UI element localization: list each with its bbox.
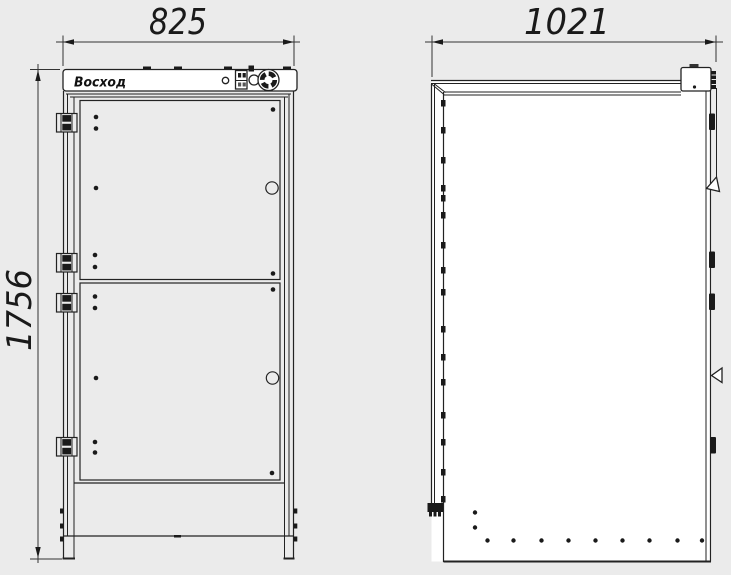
edge-clip xyxy=(441,469,446,476)
back-hinge-block xyxy=(709,252,715,269)
box-connector xyxy=(711,76,716,80)
rivet-dot xyxy=(271,271,276,276)
keyhole-lower xyxy=(266,372,278,384)
rivet-dot xyxy=(566,538,570,542)
leg-bump xyxy=(294,509,298,514)
box-connector xyxy=(711,71,716,75)
edge-clip xyxy=(441,127,446,134)
control-panel: Восход xyxy=(63,66,297,92)
front-height-dimension-label: 1756 xyxy=(0,269,40,351)
hinge-icon xyxy=(57,438,78,457)
side-depth-dimension-label: 1021 xyxy=(524,2,610,43)
rivet-dot xyxy=(94,186,99,191)
upper-door xyxy=(80,101,280,280)
cabinet-frame xyxy=(64,91,294,559)
rivet-dot xyxy=(270,471,275,476)
arrowhead-top xyxy=(35,70,40,81)
edge-clip xyxy=(441,496,446,503)
technical-drawing: 825 1756 Восход xyxy=(0,0,731,575)
arrowhead-left xyxy=(63,39,74,44)
leg-bump xyxy=(60,509,64,514)
edge-clip xyxy=(441,157,446,164)
rivet-dot xyxy=(271,107,276,112)
edge-clip xyxy=(441,439,446,446)
edge-clip xyxy=(441,354,446,361)
rivet-dot xyxy=(485,538,489,542)
back-hinge-block xyxy=(709,294,715,311)
arrowhead-bottom xyxy=(35,547,40,558)
rivet-dot xyxy=(94,126,99,131)
box-connector xyxy=(711,80,716,84)
front-width-dimension: 825 xyxy=(56,2,300,66)
edge-clip xyxy=(441,289,446,296)
thermostat-knob-icon xyxy=(258,70,279,91)
edge-clip xyxy=(441,100,446,107)
rivet-dot xyxy=(593,538,597,542)
rivet-dot xyxy=(94,376,99,381)
keyhole-upper xyxy=(266,182,278,194)
back-hinge-block xyxy=(710,437,716,454)
leg-bump xyxy=(60,524,64,529)
edge-clip xyxy=(441,195,446,202)
rivet-dot xyxy=(93,265,98,270)
edge-clip xyxy=(441,412,446,419)
rivet-dot xyxy=(675,538,679,542)
rivet-dot xyxy=(473,525,477,529)
hinge-icon xyxy=(57,254,78,273)
kick-panel xyxy=(64,483,294,538)
side-view: 1021 xyxy=(425,2,723,562)
legs xyxy=(60,509,297,559)
edge-clip xyxy=(441,212,446,219)
edge-clip xyxy=(441,185,446,192)
rivet-dot xyxy=(647,538,651,542)
arrowhead-right xyxy=(705,39,716,44)
brand-logo-text: Восход xyxy=(74,75,126,91)
box-connector xyxy=(711,85,716,89)
edge-clip xyxy=(441,267,446,274)
door-bottom-block xyxy=(428,503,444,512)
lower-door xyxy=(80,283,280,480)
front-view: 825 1756 Восход xyxy=(0,2,300,563)
drawing-canvas: 825 1756 Восход xyxy=(0,0,731,575)
rivet-dot xyxy=(271,287,276,292)
rivet-dot xyxy=(93,253,98,258)
hinge-icon xyxy=(57,294,78,313)
edge-clip xyxy=(441,326,446,333)
side-body-fill xyxy=(432,80,712,562)
rivet-dot xyxy=(94,115,99,120)
back-bracket-triangle xyxy=(712,368,723,383)
edge-clip xyxy=(441,379,446,386)
edge-clip xyxy=(441,242,446,249)
rivet-dot xyxy=(511,538,515,542)
leg-bump xyxy=(294,524,298,529)
back-hinge-block xyxy=(709,114,715,131)
power-switch-icon xyxy=(236,71,248,90)
leg-bump xyxy=(60,537,64,542)
side-depth-dimension: 1021 xyxy=(425,2,723,77)
rivet-dot xyxy=(473,510,477,514)
front-width-dimension-label: 825 xyxy=(149,2,207,43)
rivet-dot xyxy=(539,538,543,542)
rivet-dot xyxy=(93,294,98,299)
rivet-dot xyxy=(620,538,624,542)
hinge-icon xyxy=(57,114,78,133)
rivet-dot xyxy=(93,440,98,445)
leg-bump xyxy=(294,537,298,542)
arrowhead-left xyxy=(432,39,443,44)
rivet-dot xyxy=(93,306,98,311)
switch-tab xyxy=(249,66,255,72)
arrowhead-right xyxy=(283,39,294,44)
indicator-lamp-icon xyxy=(222,77,228,83)
front-height-dimension: 1756 xyxy=(0,64,62,563)
rivet-dot xyxy=(700,538,704,542)
top-box xyxy=(681,64,716,91)
rivet-dot xyxy=(93,450,98,455)
